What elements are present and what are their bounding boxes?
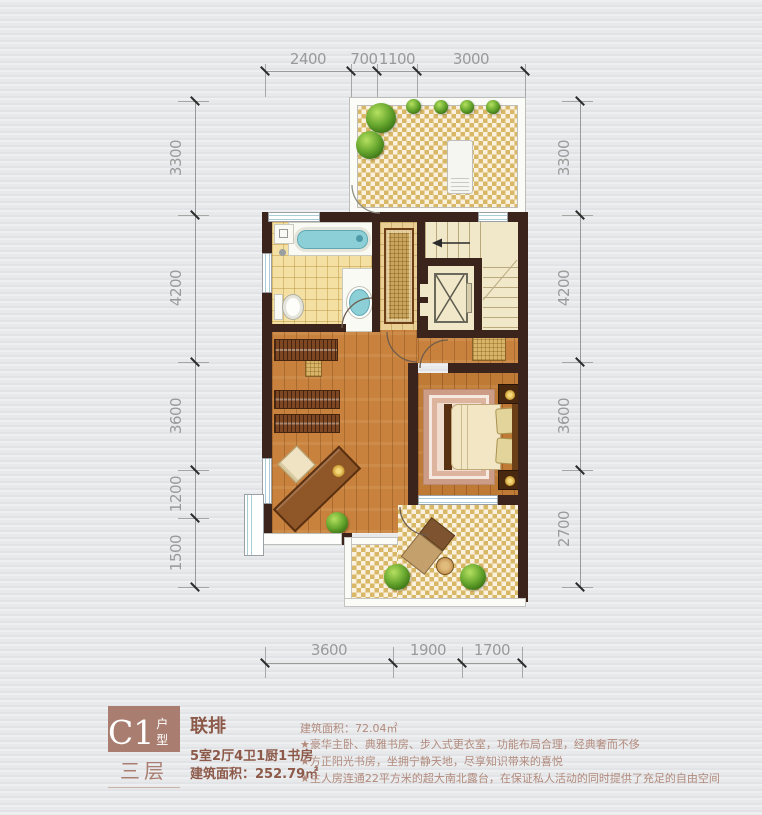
dim-right-4: 2700 [555,511,573,547]
dimension-annotations: 2400 700 1100 3000 3300 4200 3600 1200 1… [0,0,762,815]
dim-extension-line [562,101,593,102]
dim-right-2: 4200 [555,270,573,306]
dim-bottom-2: 1900 [410,641,446,659]
dim-left-1: 3300 [167,140,185,176]
dim-top-3: 1100 [379,50,415,68]
dim-extension-line [562,587,593,588]
dim-right-1: 3300 [555,140,573,176]
dim-right-3: 3600 [555,398,573,434]
dim-line-left [195,101,196,587]
dim-bottom-1: 3600 [311,641,347,659]
dim-line-top [265,71,525,72]
dim-top-1: 2400 [290,50,326,68]
dim-left-2: 4200 [167,270,185,306]
floorplan-page: 2400 700 1100 3000 3300 4200 3600 1200 1… [0,0,762,815]
dim-bottom-3: 1700 [474,641,510,659]
dim-left-4: 1200 [167,476,185,512]
dim-extension-line [562,215,593,216]
dim-left-3: 3600 [167,398,185,434]
dim-left-5: 1500 [167,535,185,571]
dim-extension-line [562,470,593,471]
dim-extension-line [562,362,593,363]
dim-top-4: 3000 [453,50,489,68]
dim-line-right [580,101,581,587]
